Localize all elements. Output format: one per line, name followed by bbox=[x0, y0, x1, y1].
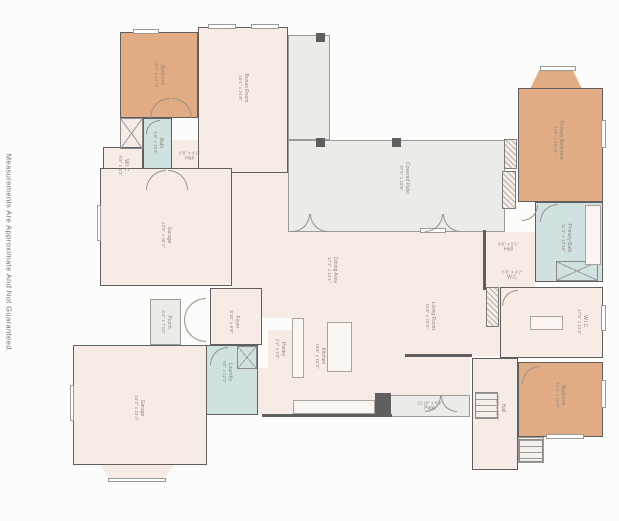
closet-fixture bbox=[120, 118, 143, 149]
patio-column bbox=[316, 138, 325, 147]
room-garage-upper bbox=[100, 168, 232, 286]
wall-segment bbox=[405, 354, 472, 357]
wall-segment bbox=[483, 230, 486, 290]
window bbox=[108, 478, 166, 482]
fireplace-hatch bbox=[502, 171, 516, 209]
counter-island bbox=[585, 205, 601, 265]
room-porch bbox=[150, 299, 181, 345]
door-arc bbox=[184, 320, 206, 342]
patio-column bbox=[316, 33, 325, 42]
closet-fixture bbox=[237, 346, 257, 369]
room-primary-bedroom bbox=[518, 88, 603, 202]
window bbox=[601, 120, 606, 148]
counter-island bbox=[293, 400, 375, 414]
room-foyer bbox=[210, 288, 262, 345]
room-hall-primary bbox=[482, 232, 535, 262]
room-covered-patio-wing bbox=[288, 35, 330, 140]
room-primary-bedroom-bay bbox=[530, 70, 582, 89]
wall-segment bbox=[262, 414, 392, 417]
room-dining-area bbox=[262, 230, 415, 318]
window bbox=[208, 24, 236, 29]
door-arc bbox=[184, 298, 206, 320]
room-pantry bbox=[268, 330, 292, 368]
room-wc bbox=[490, 262, 535, 287]
window bbox=[70, 385, 74, 421]
disclaimer-text: Measurements Are Approximate And Not Gua… bbox=[5, 154, 14, 352]
room-mud-area bbox=[258, 368, 292, 415]
window bbox=[251, 24, 279, 29]
stairs bbox=[475, 392, 498, 419]
room-garage-lower bbox=[73, 345, 207, 465]
window bbox=[601, 305, 606, 331]
floorplan: Measurements Are Approximate And Not Gua… bbox=[0, 0, 619, 521]
counter-island bbox=[327, 322, 352, 372]
fireplace-hatch bbox=[486, 287, 499, 327]
patio-column bbox=[392, 138, 401, 147]
counter-island bbox=[292, 318, 304, 378]
window bbox=[601, 380, 606, 408]
window bbox=[540, 66, 576, 71]
room-bonus-room bbox=[198, 27, 288, 173]
window bbox=[133, 29, 159, 34]
fireplace-hatch bbox=[504, 139, 517, 169]
window bbox=[546, 434, 584, 439]
counter-island bbox=[530, 316, 563, 330]
window bbox=[97, 205, 101, 241]
stairs bbox=[519, 439, 543, 462]
